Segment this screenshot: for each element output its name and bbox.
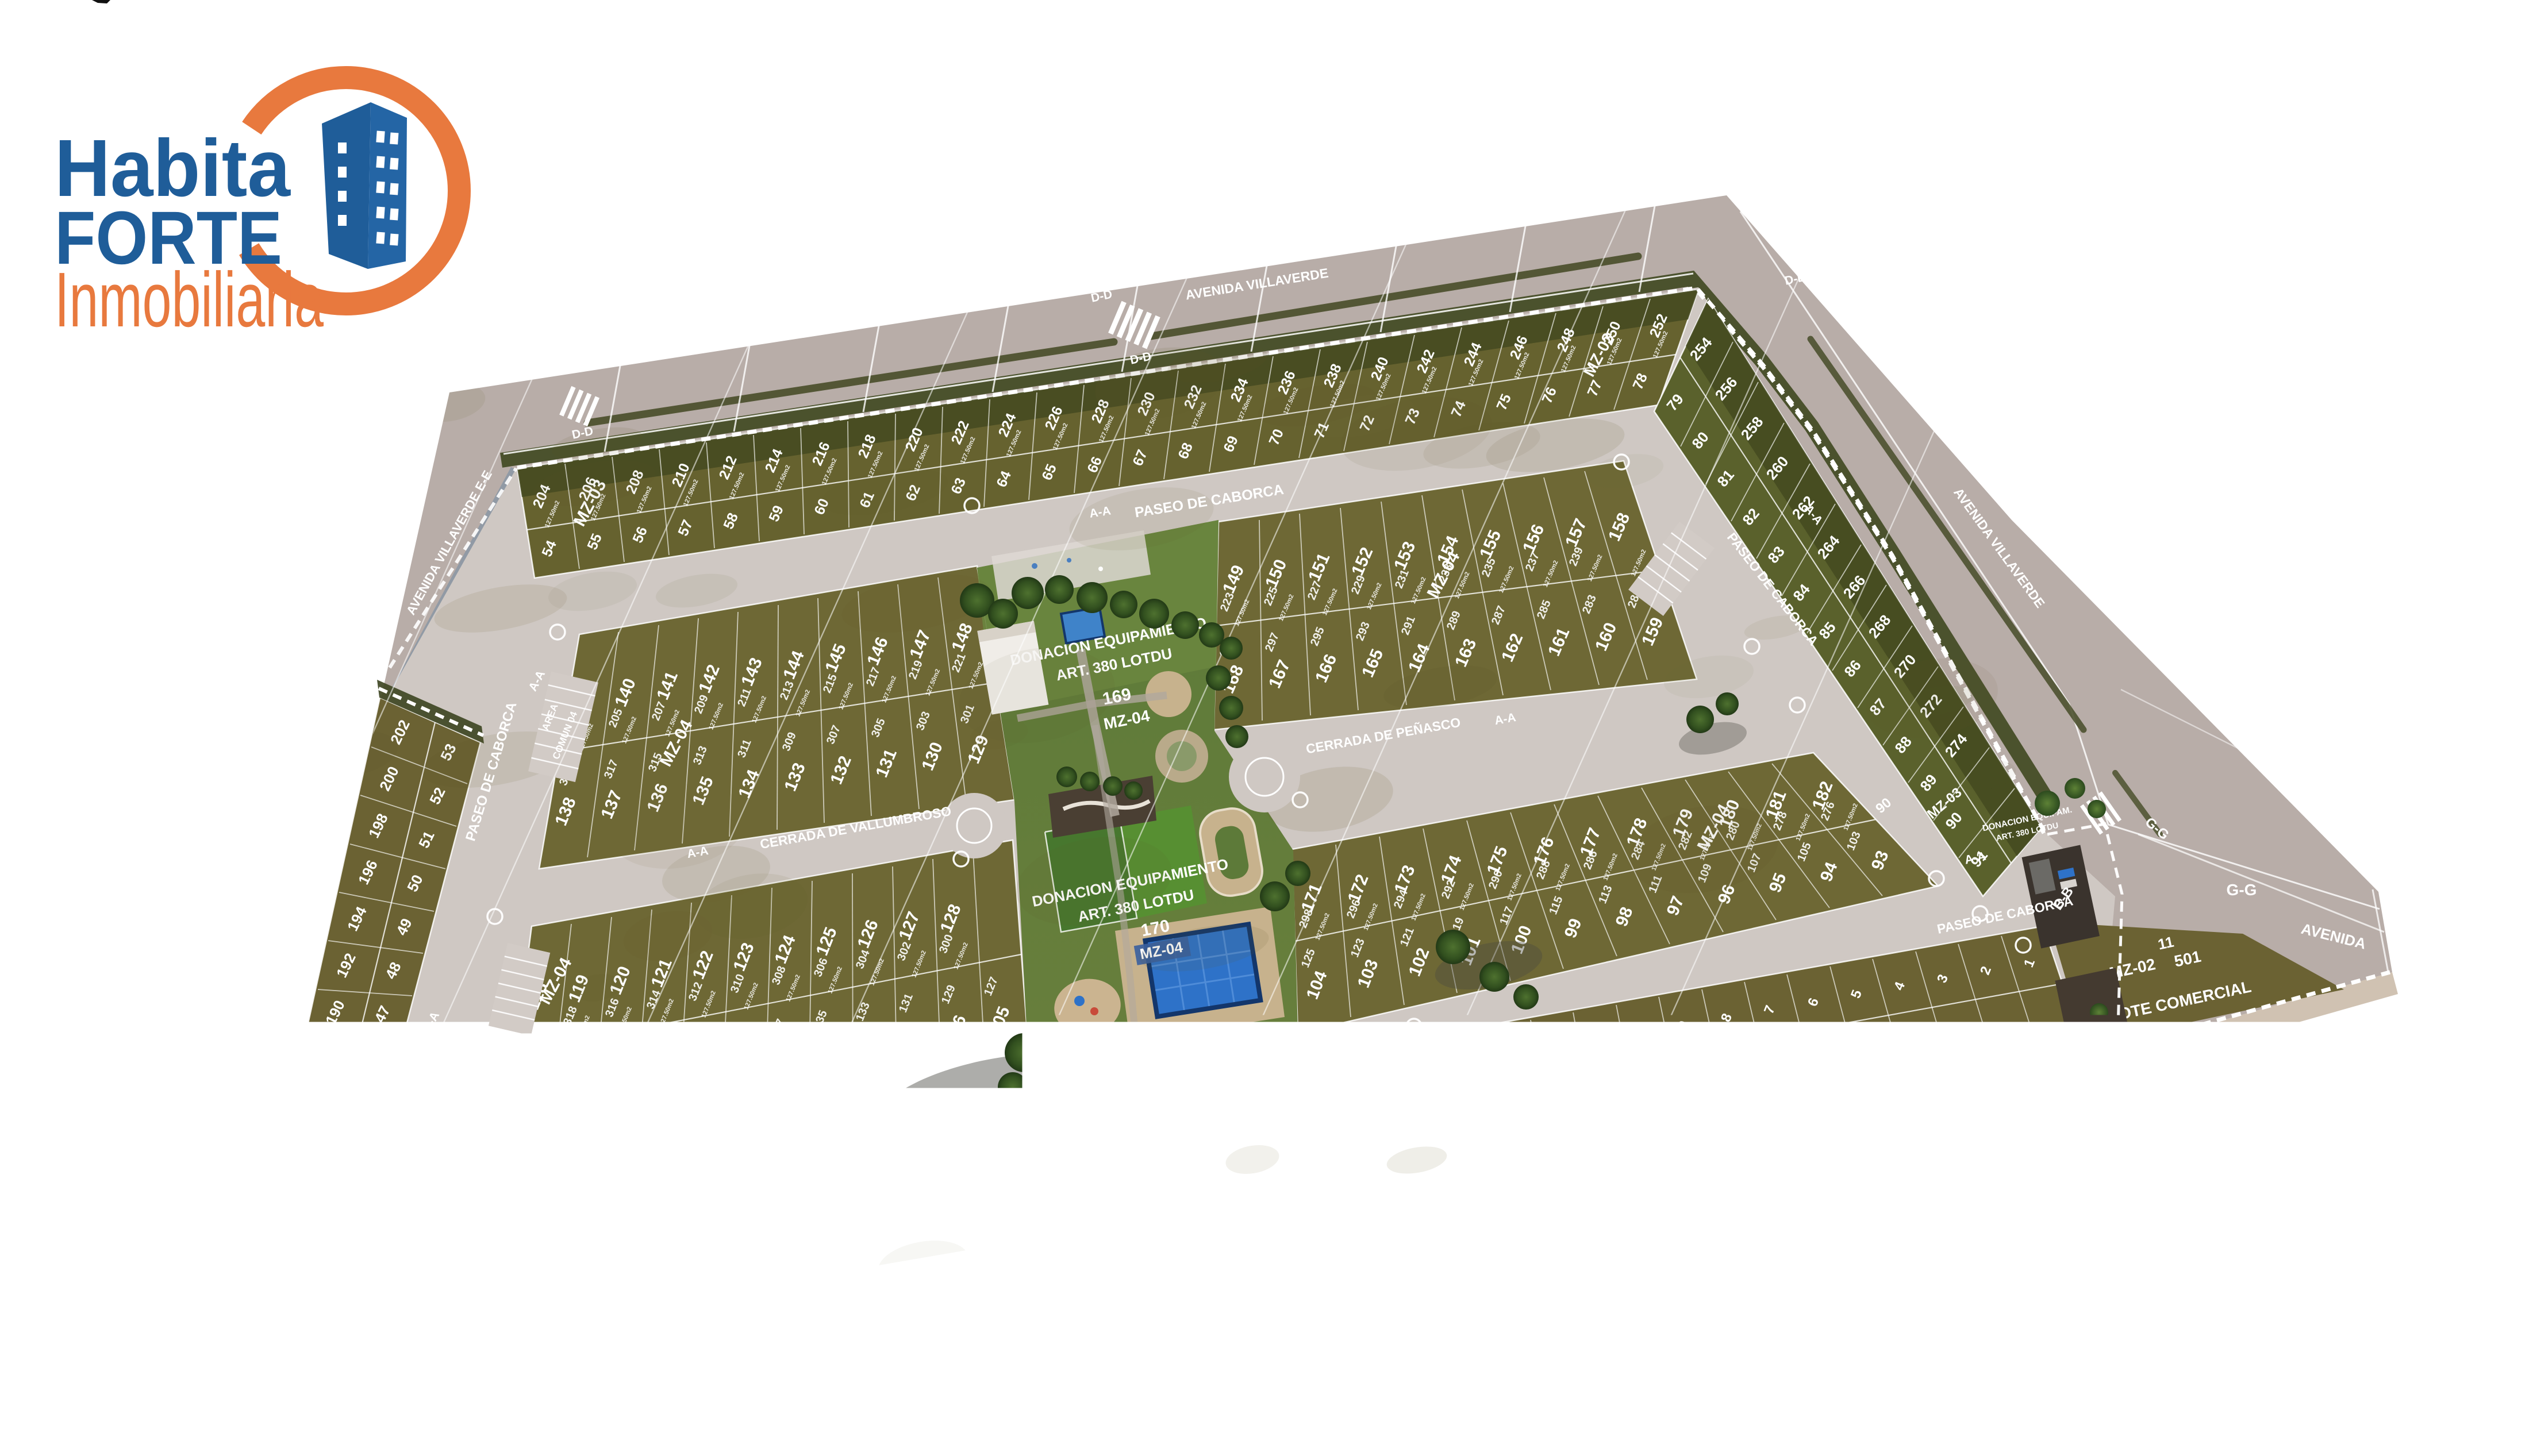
svg-text:ZARZUELA: ZARZUELA [1911, 1254, 2440, 1368]
svg-text:G-G: G-G [2227, 881, 2257, 899]
svg-text:Inmobiliaria: Inmobiliaria [55, 256, 324, 343]
